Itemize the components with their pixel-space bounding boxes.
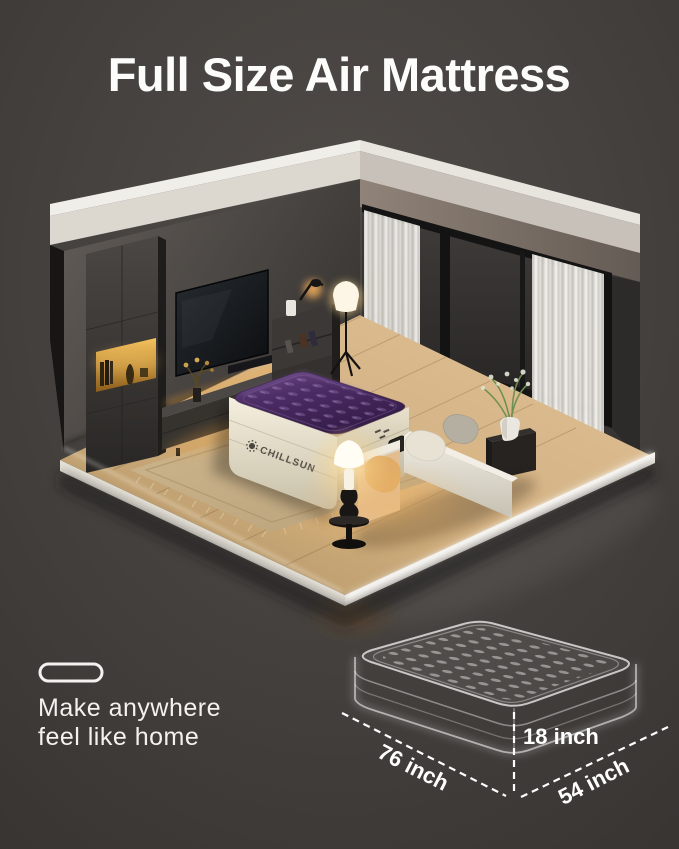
white-speaker	[286, 300, 296, 316]
wardrobe	[86, 236, 166, 473]
lamp-base	[332, 539, 366, 549]
window-mullion	[440, 229, 450, 367]
dimension-height-label: 18 inch	[523, 724, 599, 749]
tagline-line1: Make anywhere	[38, 694, 221, 722]
lamp-neck	[344, 469, 354, 490]
page-title: Full Size Air Mattress	[108, 48, 571, 101]
niche-cup	[140, 368, 148, 377]
tagline-line2: feel like home	[38, 723, 199, 751]
niche-books	[100, 362, 104, 386]
product-image: Full Size Air Mattress	[0, 0, 679, 849]
